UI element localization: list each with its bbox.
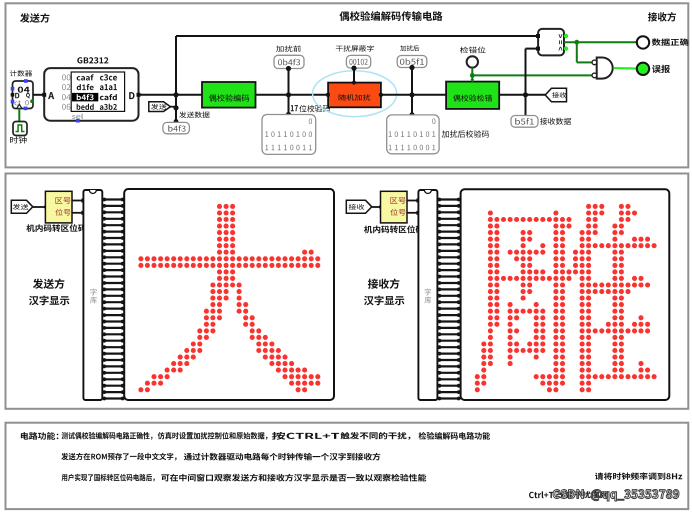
svg-text:=: = [556, 40, 565, 45]
